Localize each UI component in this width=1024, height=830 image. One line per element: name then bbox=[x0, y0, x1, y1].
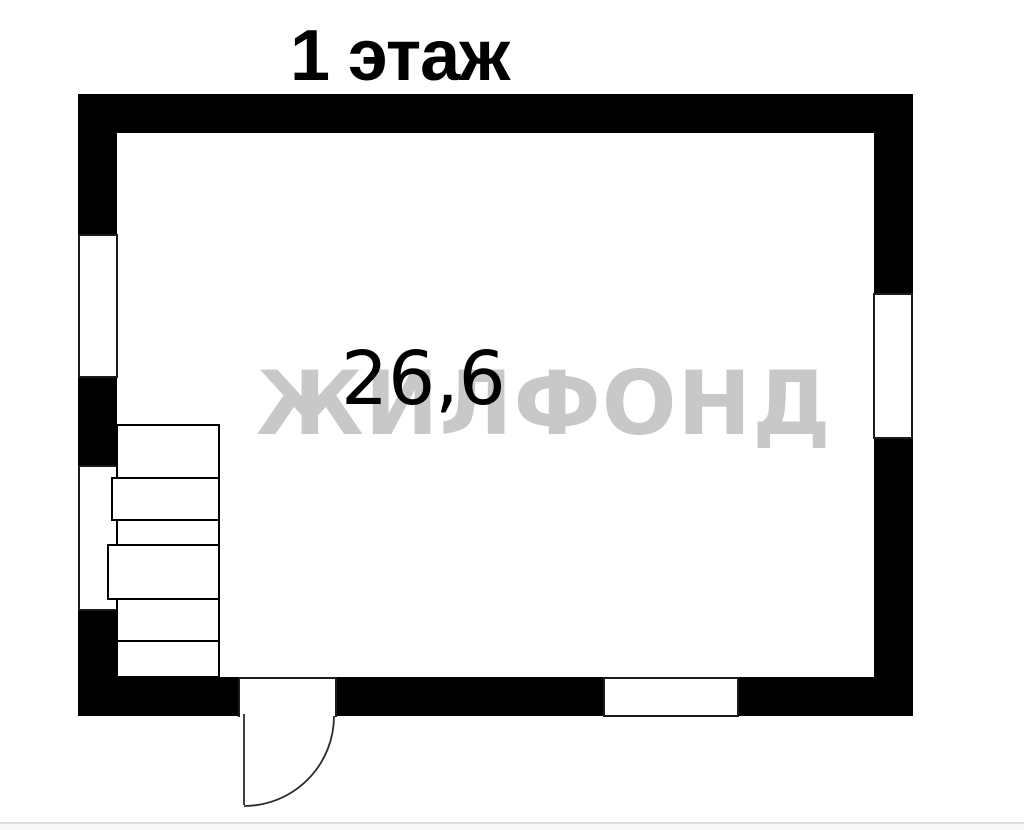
room-area-label: 26,6 bbox=[341, 342, 506, 416]
stair-tread bbox=[107, 544, 220, 600]
stair-tread bbox=[116, 640, 220, 678]
window-left-upper bbox=[78, 234, 118, 378]
stair-tread bbox=[111, 477, 220, 521]
stair-tread bbox=[116, 424, 220, 480]
wall-bottom bbox=[78, 677, 913, 716]
stair-tread bbox=[116, 598, 220, 642]
door-swing-arc bbox=[242, 714, 338, 810]
photo-edge-strip bbox=[0, 824, 1024, 830]
window-bottom bbox=[603, 677, 739, 717]
floor-plan-image: 1 этаж ЖИЛФОНД 26,6 bbox=[0, 0, 1024, 830]
window-right bbox=[873, 293, 913, 439]
wall-top bbox=[78, 94, 913, 133]
floor-title: 1 этаж bbox=[290, 20, 509, 92]
stair-tread bbox=[116, 519, 220, 547]
door-opening bbox=[238, 677, 337, 717]
wall-left bbox=[78, 94, 117, 716]
